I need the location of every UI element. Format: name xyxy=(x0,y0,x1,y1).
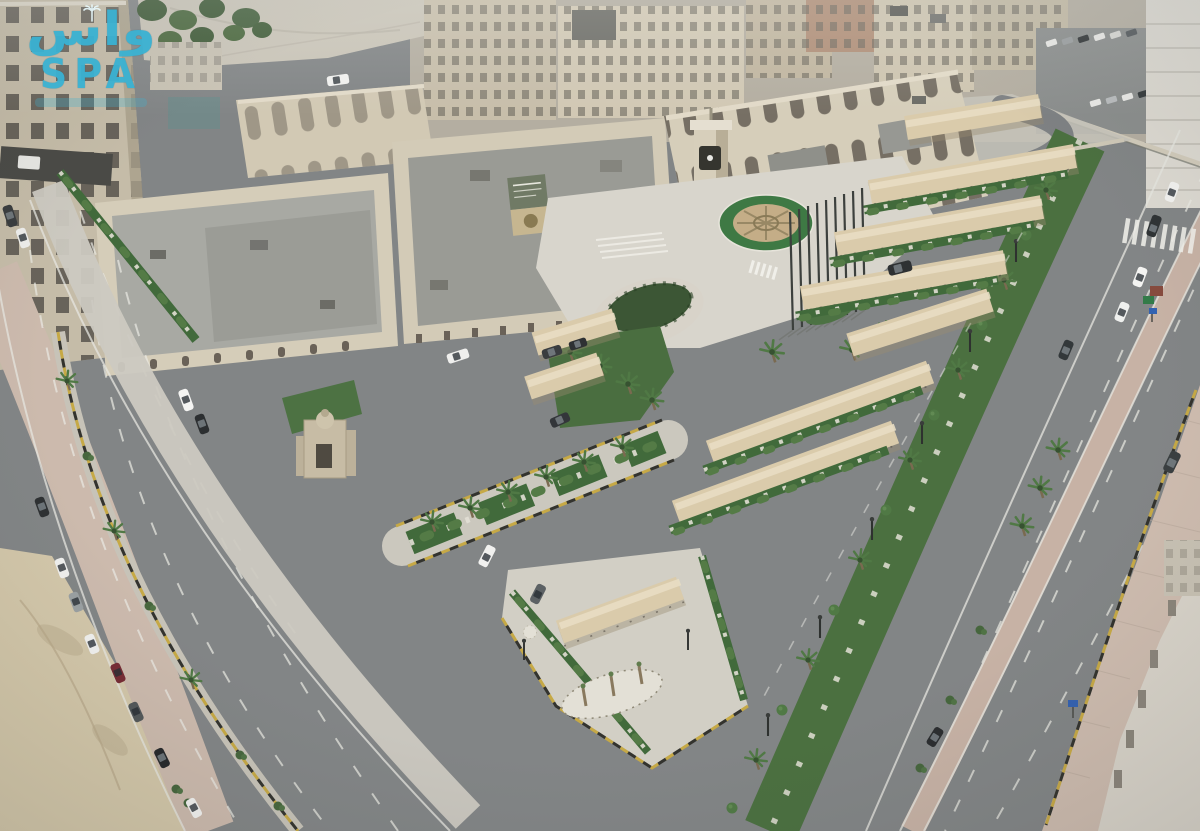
watermark-tagline-bar xyxy=(35,98,147,107)
aerial-photo: واس SPA xyxy=(0,0,1200,831)
vignette-overlay xyxy=(0,0,1200,831)
spa-watermark: واس SPA xyxy=(26,6,156,107)
watermark-latin: SPA xyxy=(26,52,156,95)
watermark-arabic: واس xyxy=(14,6,167,54)
scene-canvas xyxy=(0,0,1200,831)
